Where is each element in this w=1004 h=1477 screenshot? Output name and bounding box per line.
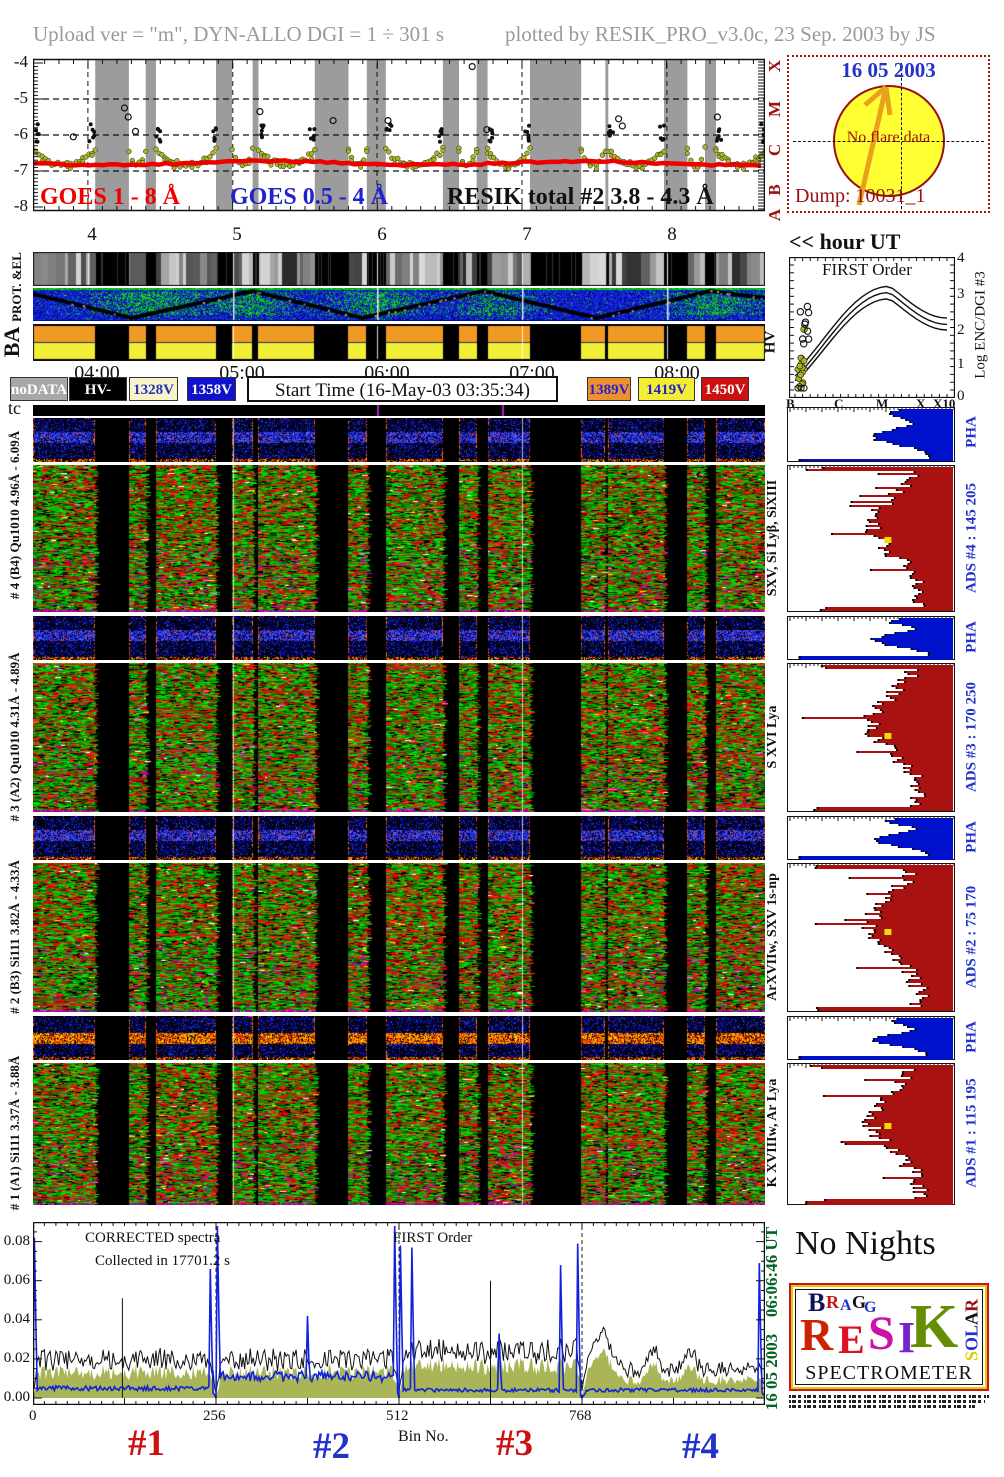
bottom-xtick: 0: [29, 1408, 37, 1425]
pha2-label: PHA: [964, 821, 981, 853]
goes-xtick: 5: [207, 224, 267, 246]
ads4-label: ADS #4 : 145 205: [964, 483, 981, 593]
spectrogram-main-ch2: [33, 863, 765, 1012]
goes-legend-1-8: GOES 1 - 8 Å: [40, 184, 180, 211]
logo-letter: R: [962, 1299, 982, 1312]
legend-1450v: 1450V: [701, 377, 749, 401]
ba-label: BA: [0, 327, 25, 358]
collected-time-note: Collected in 17701.2 s: [95, 1253, 230, 1270]
spectrogram-strip-ch3: [33, 616, 765, 660]
channel-tag-4: #4: [682, 1425, 719, 1468]
goes-xtick: 6: [352, 224, 412, 246]
bottom-ytick: 0.02: [2, 1350, 30, 1367]
corrected-spectra-plot: [33, 1222, 765, 1405]
spectrogram-main-ch1: [33, 1063, 765, 1205]
legend-hv-off: HV-OFF: [69, 377, 127, 401]
logo-letter: R: [800, 1308, 833, 1361]
logo-letter: A: [962, 1312, 982, 1325]
pha3-label: PHA: [964, 621, 981, 653]
ads-histogram-ch3: [787, 663, 955, 812]
bottom-ytick: 0.08: [2, 1233, 30, 1250]
channel1-left-label: # 1 (A1) Si111 3.37Å - 3.88Å: [7, 1056, 23, 1211]
logo-letter: O: [962, 1337, 982, 1351]
bottom-xtick: 256: [203, 1408, 226, 1425]
ads-histogram-ch2: [787, 863, 955, 1012]
resik-quicklook-figure: Upload ver = "m", DYN-ALLO DGI = 1 ÷ 301…: [0, 0, 1004, 1477]
spectrogram-strip-ch2: [33, 816, 765, 860]
hv-label: HV: [763, 331, 780, 354]
header-plotted-by: plotted by RESIK_PRO_v3.0c, 23 Sep. 2003…: [505, 22, 936, 47]
fo-ytick: 1: [957, 356, 965, 373]
channel-tag-1: #1: [128, 1422, 165, 1465]
bottom-ytick: 0.04: [2, 1311, 30, 1328]
flare-date: 16 05 2003: [789, 58, 988, 83]
spectrogram-main-ch4: [33, 465, 765, 612]
ads2-label: ADS #2 : 75 170: [964, 886, 981, 989]
fo-ytick: 3: [957, 286, 965, 303]
legend-1358v: 1358V: [187, 377, 236, 401]
logo-letter: L: [962, 1325, 982, 1337]
ads-histogram-ch4: [787, 465, 955, 612]
pha-histogram-ch1: [787, 1016, 955, 1060]
bottom-xtick: 768: [569, 1408, 592, 1425]
pha1-label: PHA: [964, 1021, 981, 1053]
no-nights-label: No Nights: [795, 1225, 936, 1263]
prot-el-label: PROT. &EL: [9, 252, 25, 322]
pha-histogram-ch3: [787, 616, 955, 660]
resik-logo: B R A G G R E S I K SOLAR SPECTROMETER: [789, 1283, 989, 1391]
corrected-spectra-note: CORRECTED spectra: [85, 1230, 220, 1247]
spectrogram-main-ch3: [33, 663, 765, 812]
channel3-left-label: # 3 (A2) Qu1010 4.31Å - 4.89Å: [7, 653, 23, 822]
goes-xtick: 8: [642, 224, 702, 246]
ba-hv-status-bar: [33, 324, 765, 361]
logo-letter: S: [962, 1351, 982, 1361]
prot-el-grayscale-bar: [33, 252, 765, 286]
goes-xtick: 7: [497, 224, 557, 246]
fo-ytick: 4: [957, 250, 965, 267]
goes-class-m: M: [765, 101, 785, 117]
ads1-label: ADS #1 : 115 195: [964, 1078, 981, 1187]
flare-info-box: 16 05 2003 No flare data Dump: 10031_1: [787, 55, 990, 213]
tc-bar: [33, 405, 765, 416]
spectrogram-strip-ch4: [33, 418, 765, 462]
channel1-line-label: K XVIIIw, Ar Lya: [765, 1079, 781, 1188]
goes-ytick: -4: [2, 52, 28, 72]
goes-ytick: -5: [2, 88, 28, 108]
spectrogram-strip-ch1: [33, 1016, 765, 1060]
goes-ytick: -8: [2, 196, 28, 216]
bottom-xtick: 512: [386, 1408, 409, 1425]
logo-letter: E: [838, 1316, 865, 1363]
header-upload-version: Upload ver = "m", DYN-ALLO DGI = 1 ÷ 301…: [33, 22, 444, 47]
bottom-first-order-note: FIRST Order: [393, 1230, 472, 1247]
logo-letter: K: [910, 1292, 958, 1363]
dump-id: Dump: 10031_1: [795, 185, 926, 208]
logo-credits-microtext: [789, 1405, 975, 1408]
channel2-left-label: # 2 (B3) Si111 3.82Å - 4.33Å: [7, 860, 23, 1014]
side-timestamp-time: 06:06:46 UT: [762, 1227, 782, 1317]
goes-class-c: C: [765, 144, 785, 156]
goes-class-x: X: [765, 60, 785, 72]
logo-spectrometer-word: SPECTROMETER: [796, 1362, 982, 1385]
fo-ylabel: Log ENC/DGI #3: [973, 271, 990, 379]
fo-ytick: 2: [957, 322, 965, 339]
side-timestamp-date: 16 05 2003: [762, 1334, 782, 1411]
pha-histogram-ch4: [787, 407, 955, 462]
goes-legend-05-4: GOES 0.5 - 4 Å: [230, 184, 388, 211]
fo-ytick: 0: [957, 388, 965, 405]
resik-total-legend: RESIK total #2 3.8 - 4.3 Å: [447, 184, 714, 211]
channel2-line-label: ArXVIIw, SXV 1s-np: [765, 873, 781, 1001]
orbit-elevation-bar: [33, 288, 765, 321]
channel4-line-label: SXV, Si Lyβ, SiXIII: [765, 480, 781, 596]
goes-class-b: B: [765, 184, 785, 195]
legend-1389v: 1389V: [587, 377, 631, 401]
goes-class-a: A: [765, 209, 785, 221]
goes-ytick: -7: [2, 160, 28, 180]
start-time-box: Start Time (16-May-03 03:35:34): [247, 376, 558, 402]
goes-ytick: -6: [2, 124, 28, 144]
bin-no-label: Bin No.: [398, 1428, 449, 1446]
logo-letter: A: [840, 1297, 852, 1315]
no-flare-message: No flare data: [789, 129, 988, 147]
legend-1419v: 1419V: [638, 377, 695, 401]
logo-credits-microtext: [789, 1400, 985, 1403]
tc-label: tc: [8, 398, 21, 419]
bottom-ytick: 0.00: [2, 1389, 30, 1406]
goes-xtick: 4: [62, 224, 122, 246]
ads3-label: ADS #3 : 170 250: [964, 682, 981, 792]
pha4-label: PHA: [964, 416, 981, 448]
hour-ut-label: << hour UT: [789, 229, 900, 255]
logo-credits-microtext: [789, 1395, 989, 1398]
channel-tag-3: #3: [496, 1422, 533, 1465]
first-order-title: FIRST Order: [822, 260, 912, 280]
legend-1328v: 1328V: [129, 377, 178, 401]
bottom-ytick: 0.06: [2, 1272, 30, 1289]
logo-letter: S: [868, 1306, 895, 1361]
ads-histogram-ch1: [787, 1063, 955, 1205]
channel3-line-label: S XVI Lya: [765, 705, 781, 768]
channel4-left-label: # 4 (B4) Qu1010 4.96Å - 6.09Å: [7, 431, 23, 599]
pha-histogram-ch2: [787, 816, 955, 860]
channel-tag-2: #2: [313, 1425, 350, 1468]
